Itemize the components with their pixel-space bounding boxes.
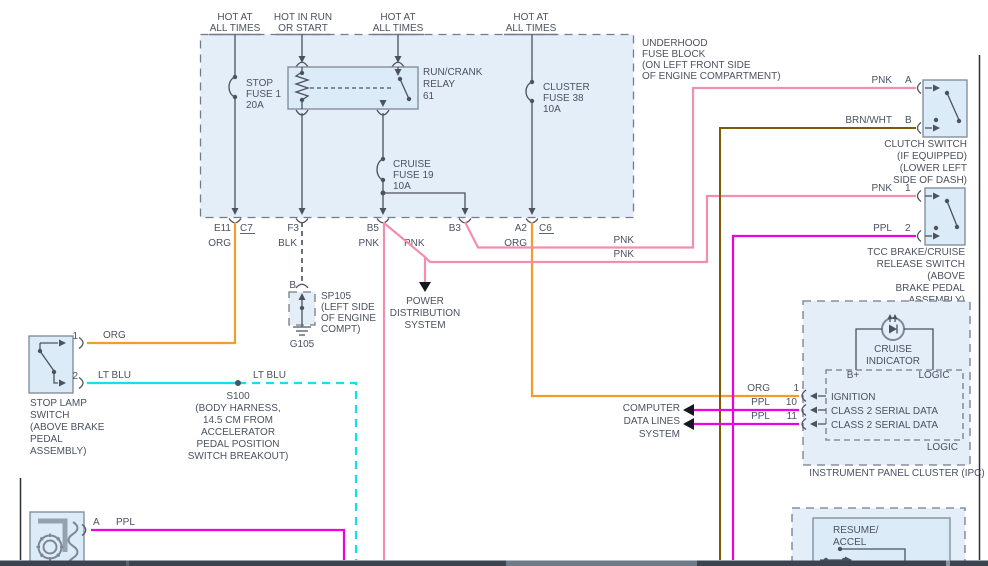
pin-number: 2 [905, 223, 911, 234]
pin-label-f3: F3 [287, 223, 299, 234]
component-label: (LOWER LEFT [900, 163, 967, 174]
system-label: DATA LINES [624, 416, 681, 427]
component-label: TCC BRAKE/CRUISE [867, 247, 965, 258]
component-label: ASSEMBLY) [30, 446, 87, 457]
pin-number: 10 [786, 397, 798, 408]
wire-color-label: PNK [358, 238, 379, 249]
stop-lamp-switch-box [29, 336, 73, 393]
splice-dot [300, 306, 304, 310]
component-label: RELEASE SWITCH [877, 259, 965, 270]
coil-terminal [300, 98, 304, 102]
terminal-label: B+ [847, 370, 860, 381]
wire-color-label: LT BLU [98, 370, 131, 381]
pin-label-a2: A2 [515, 223, 528, 234]
fuse-label: STOP [246, 78, 273, 89]
wire-color-label: BLK [278, 238, 297, 249]
wire-color-label: PNK [871, 75, 892, 86]
fuse-label: CLUSTER [543, 82, 590, 93]
computer-data-lines-system: COMPUTER DATA LINES SYSTEM [623, 403, 694, 440]
pin-label-b: B [289, 280, 296, 291]
pin-number: 1 [905, 183, 911, 194]
relay-label: RUN/CRANK [423, 67, 483, 78]
wire-color-label: ORG [103, 330, 126, 341]
switch-label: RESUME/ [833, 525, 879, 536]
feed-label: HOT AT [380, 12, 415, 23]
bottom-bar [0, 561, 988, 566]
fuse-terminal [530, 80, 534, 84]
component-label: SWITCH [30, 410, 69, 421]
feed-label: HOT AT [217, 12, 252, 23]
splice-ref: S100 [226, 391, 250, 402]
switch-contact-dot [934, 226, 938, 230]
fuse-block-note: OF ENGINE COMPARTMENT) [642, 71, 781, 82]
system-label: COMPUTER [623, 403, 680, 414]
splice-s100: S100 (BODY HARNESS, 14.5 CM FROM ACCELER… [188, 380, 289, 462]
splice-note: PEDAL POSITION [197, 439, 280, 450]
wire-color-label: ORG [747, 383, 770, 394]
pin-label-b3: B3 [449, 223, 462, 234]
power-distribution-system: POWER DISTRIBUTION SYSTEM [390, 282, 461, 331]
system-label: DISTRIBUTION [390, 308, 461, 319]
switch-label: ACCEL [833, 537, 867, 548]
ipc-title: INSTRUMENT PANEL CLUSTER (IPC) [809, 468, 984, 479]
pin-label-e11: E11 [214, 223, 231, 234]
feed-label: ALL TIMES [506, 23, 557, 34]
feed-label: HOT AT [513, 12, 548, 23]
fuse-terminal [381, 157, 385, 161]
fuse-label: FUSE 38 [543, 93, 584, 104]
wire-color-label: PNK [613, 235, 634, 246]
bottom-bar-track[interactable] [0, 561, 988, 566]
pin-number: 1 [72, 331, 78, 342]
system-label: SYSTEM [639, 429, 680, 440]
logic-corner-label: LOGIC [927, 442, 958, 453]
wire-color-label: PPL [873, 223, 892, 234]
arrow-left-icon [683, 404, 694, 416]
fuse-label: FUSE 19 [393, 170, 434, 181]
pin-number: 2 [72, 371, 78, 382]
splice-sp105: B SP105 (LEFT SIDE OF ENGINE COMPT) G105 [289, 280, 376, 350]
terminal-label: LOGIC [918, 370, 949, 381]
splice-note: (BODY HARNESS, [195, 403, 280, 414]
wire-color-label: BRN/WHT [845, 115, 892, 126]
clutch-switch: PNK A BRN/WHT B CLUTCH SWITCH (IF EQUIPP… [845, 75, 967, 186]
pin-number: 11 [787, 411, 798, 422]
splice-note: OF ENGINE [321, 313, 376, 324]
splice-note: SWITCH BREAKOUT) [188, 451, 289, 462]
wire-color-label: PPL [751, 411, 770, 422]
cruise-control-wiring-diagram: UNDERHOOD FUSE BLOCK (ON LEFT FRONT SIDE… [0, 0, 988, 566]
fuse-label: 20A [246, 100, 264, 111]
connector-arc [918, 191, 922, 242]
instrument-panel-cluster: CRUISE INDICATOR B+ LOGIC IGNITION CLASS… [747, 301, 984, 479]
signal-label: IGNITION [831, 392, 875, 403]
component-label: (ABOVE [927, 271, 965, 282]
connector-arc [918, 83, 922, 134]
bottom-bar-divider [126, 561, 129, 566]
wire-ppl-servo [91, 530, 344, 560]
signal-label: CLASS 2 SERIAL DATA [831, 406, 938, 417]
switch-contact-dot [955, 225, 959, 229]
splice-note: ACCELERATOR [201, 427, 275, 438]
wiring-diagram-page: UNDERHOOD FUSE BLOCK (ON LEFT FRONT SIDE… [0, 0, 988, 566]
indicator-label: INDICATOR [866, 356, 920, 367]
switch-contact-dot [407, 97, 411, 101]
signal-label: CLASS 2 SERIAL DATA [831, 420, 938, 431]
arrow-down-icon [419, 282, 431, 292]
splice-dot [235, 380, 241, 386]
switch-contact-dot [934, 118, 938, 122]
connector-arc [296, 284, 308, 288]
splice-note: 14.5 CM FROM [203, 415, 273, 426]
fuse-block-note: FUSE BLOCK [642, 49, 706, 60]
fuse-terminal [233, 75, 237, 79]
switch-contact-dot [957, 119, 961, 123]
tcc-brake-cruise-release-switch: PNK 1 PPL 2 TCC BRAKE/CRUISE RELEASE SWI… [867, 183, 965, 306]
ground-ref: G105 [290, 339, 315, 350]
relay-label: 61 [423, 91, 435, 102]
splice-ref: SP105 [321, 291, 351, 302]
wire-pnk-power-dist [384, 223, 425, 282]
coil-terminal [300, 71, 304, 75]
fuse-block-note: (ON LEFT FRONT SIDE [642, 60, 751, 71]
fuse-label: FUSE 1 [246, 89, 281, 100]
system-label: POWER [406, 296, 444, 307]
pin-label-c6: C6 [539, 223, 552, 234]
pin-label-c7: C7 [240, 223, 253, 234]
feed-label: HOT IN RUN [274, 12, 332, 23]
wire-color-label: ORG [208, 238, 231, 249]
pin-number: 1 [793, 383, 799, 394]
fuse-label: 10A [543, 104, 561, 115]
wire-color-label: PPL [751, 397, 770, 408]
component-label: STOP LAMP [30, 398, 87, 409]
fuse-label: 10A [393, 181, 411, 192]
component-label: PEDAL [30, 434, 63, 445]
feed-label: ALL TIMES [373, 23, 424, 34]
splice-note: COMPT) [321, 324, 360, 335]
wire-color-label: PNK [613, 249, 634, 260]
relay-label: RELAY [423, 79, 455, 90]
component-label: CLUTCH SWITCH [884, 139, 967, 150]
resume-accel-switch: RESUME/ ACCEL [792, 508, 965, 566]
pin-label-a: A [93, 517, 100, 528]
fuse-label: CRUISE [393, 159, 431, 170]
wire-color-label: PPL [116, 517, 135, 528]
indicator-label: CRUISE [874, 344, 912, 355]
pin-label-a: A [905, 75, 912, 86]
fuse-block-box [201, 35, 634, 218]
component-label: (IF EQUIPPED) [897, 151, 967, 162]
fuse-block-note: UNDERHOOD [642, 38, 708, 49]
bottom-bar-thumb[interactable] [506, 561, 697, 566]
splice-note: (LEFT SIDE [321, 302, 375, 313]
component-label: (ABOVE BRAKE [30, 422, 105, 433]
wire-color-label: LT BLU [253, 370, 286, 381]
system-label: SYSTEM [404, 320, 445, 331]
bottom-bar-divider [946, 561, 950, 566]
arrow-left-icon [683, 418, 694, 430]
component-label: BRAKE PEDAL [896, 283, 966, 294]
cruise-servo-module: A PPL [30, 512, 135, 566]
connector-arc [79, 338, 83, 389]
feed-label: ALL TIMES [210, 23, 261, 34]
pin-label-b: B [905, 115, 912, 126]
pin-label-b5: B5 [367, 223, 380, 234]
power-feed-labels: HOT AT ALL TIMES HOT IN RUN OR START HOT… [210, 12, 557, 34]
wire-color-label: PNK [871, 183, 892, 194]
feed-label: OR START [278, 23, 328, 34]
